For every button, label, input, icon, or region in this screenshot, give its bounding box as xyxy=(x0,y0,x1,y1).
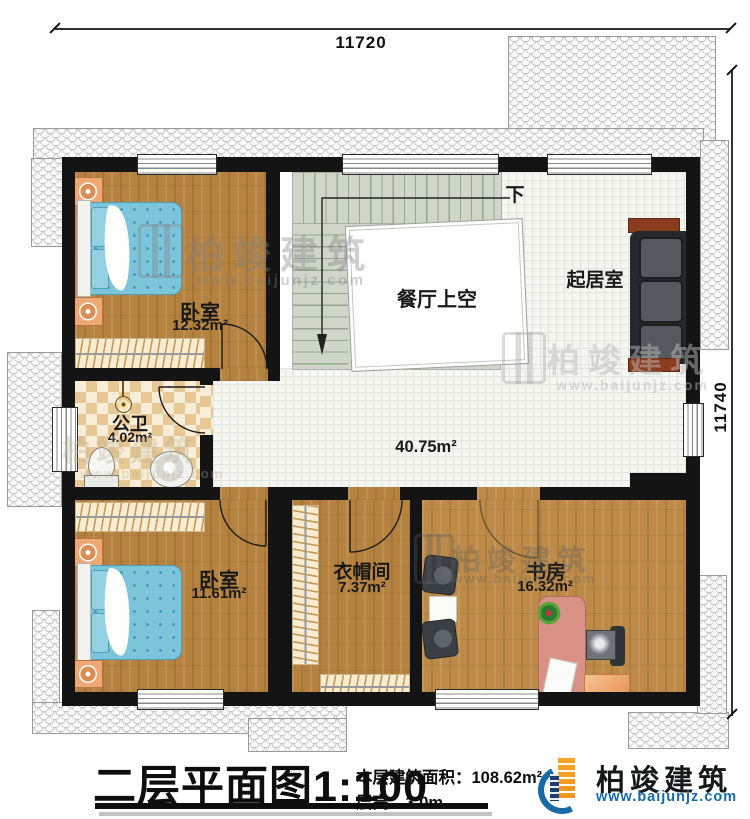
floor-plan: 11720 11740 xyxy=(0,0,750,819)
room-label-void: 餐厅上空 xyxy=(387,283,487,312)
company-url: www.baijunjz.com xyxy=(596,789,737,805)
stairs-down-label: 下 xyxy=(503,180,527,207)
floor-area-line: 本层建筑面积：108.62m² xyxy=(356,764,542,788)
door-arc-bathroom xyxy=(159,387,205,433)
hall-area-label: 40.75m² xyxy=(388,438,464,457)
room-area-bedroom2: 11.61m² xyxy=(177,585,261,602)
room-area-bedroom1: 12.32m² xyxy=(155,317,245,334)
floor-area-value: 108.62m² xyxy=(472,769,543,787)
room-area-study: 16.32m² xyxy=(505,578,585,595)
floor-height-label: 层高： xyxy=(356,794,406,812)
door-arc-study xyxy=(480,500,538,558)
floor-height-line: 层高：3.0m xyxy=(356,789,443,813)
room-area-bathroom: 4.02m² xyxy=(98,429,162,445)
door-arc-bedroom2 xyxy=(220,500,266,546)
logo-building-orange xyxy=(558,756,575,800)
company-logo-icon xyxy=(538,754,590,812)
floor-area-label: 本层建筑面积： xyxy=(356,769,472,787)
logo-building-blue xyxy=(550,774,559,801)
stair-down-arrow xyxy=(317,334,327,355)
floor-height-value: 3.0m xyxy=(406,794,444,812)
stair-path-line xyxy=(322,198,510,336)
room-area-closet: 7.37m² xyxy=(326,579,398,596)
door-arc-closet xyxy=(350,500,402,552)
room-label-living: 起居室 xyxy=(559,265,631,292)
